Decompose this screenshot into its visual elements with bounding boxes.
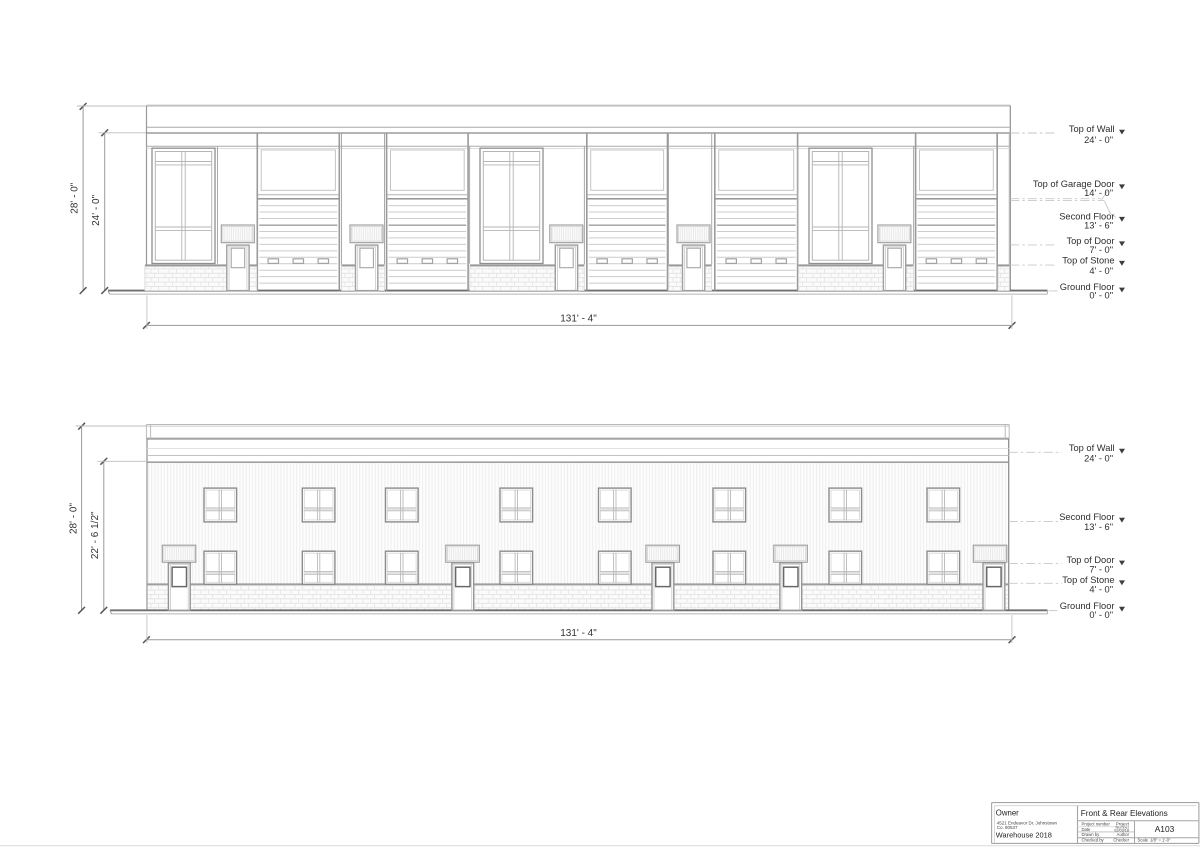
svg-text:Top of Stone: Top of Stone — [1062, 255, 1114, 265]
svg-text:4' - 0": 4' - 0" — [1089, 266, 1113, 276]
svg-text:Project number: Project number — [1082, 821, 1111, 826]
svg-text:28' - 0": 28' - 0" — [68, 503, 79, 534]
svg-text:0' - 0": 0' - 0" — [1089, 610, 1113, 620]
svg-text:Date: Date — [1082, 827, 1092, 832]
svg-text:4' - 0": 4' - 0" — [1089, 585, 1113, 595]
svg-text:14' - 0": 14' - 0" — [1084, 188, 1113, 198]
svg-text:7' - 0": 7' - 0" — [1089, 245, 1113, 255]
svg-text:Drawn by: Drawn by — [1082, 832, 1101, 837]
svg-text:Top of Stone: Top of Stone — [1062, 575, 1114, 585]
svg-text:22' - 6 1/2": 22' - 6 1/2" — [90, 511, 101, 559]
svg-text:Owner: Owner — [996, 808, 1019, 817]
svg-text:A103: A103 — [1155, 824, 1175, 834]
svg-text:Top of Wall: Top of Wall — [1069, 443, 1115, 453]
svg-text:Author: Author — [1117, 832, 1130, 837]
svg-text:24' - 0": 24' - 0" — [91, 194, 102, 225]
svg-text:7' - 0": 7' - 0" — [1089, 564, 1113, 574]
svg-text:Front & Rear Elevations: Front & Rear Elevations — [1081, 809, 1168, 818]
svg-text:Scale: Scale — [1138, 837, 1149, 842]
svg-text:24' - 0": 24' - 0" — [1084, 135, 1113, 145]
svg-text:13' - 6": 13' - 6" — [1084, 522, 1113, 532]
svg-text:Top of Wall: Top of Wall — [1069, 124, 1115, 134]
svg-text:131' - 4": 131' - 4" — [560, 314, 597, 325]
svg-text:13' - 6": 13' - 6" — [1084, 221, 1113, 231]
svg-text:Checker: Checker — [1113, 838, 1129, 843]
svg-text:28' - 0": 28' - 0" — [69, 182, 80, 213]
svg-text:Checked by: Checked by — [1082, 838, 1105, 843]
svg-text:1/8" = 1'-0": 1/8" = 1'-0" — [1150, 837, 1171, 842]
svg-text:Warehouse 2018: Warehouse 2018 — [996, 831, 1052, 840]
svg-text:0' - 0": 0' - 0" — [1089, 291, 1113, 301]
svg-text:Co. 80537: Co. 80537 — [997, 825, 1018, 830]
svg-text:Second Floor: Second Floor — [1059, 512, 1114, 522]
svg-text:131' - 4": 131' - 4" — [560, 628, 597, 639]
svg-text:02/09/18: 02/09/18 — [1114, 828, 1129, 832]
svg-text:24' - 0": 24' - 0" — [1084, 454, 1113, 464]
